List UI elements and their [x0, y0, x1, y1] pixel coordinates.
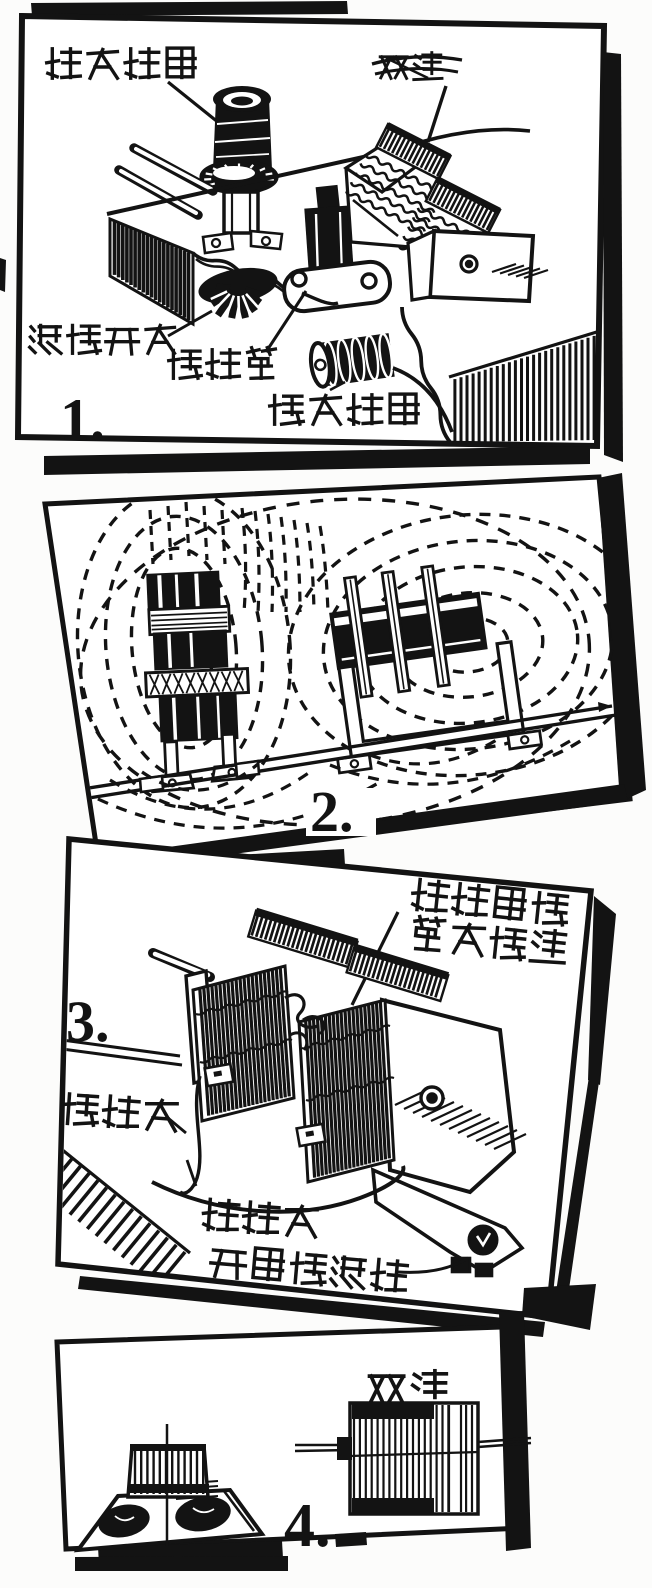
- svg-text:1.: 1.: [60, 387, 105, 453]
- svg-text:2.: 2.: [310, 779, 354, 844]
- svg-text:3.: 3.: [66, 989, 110, 1054]
- svg-text:4.: 4.: [284, 1492, 331, 1560]
